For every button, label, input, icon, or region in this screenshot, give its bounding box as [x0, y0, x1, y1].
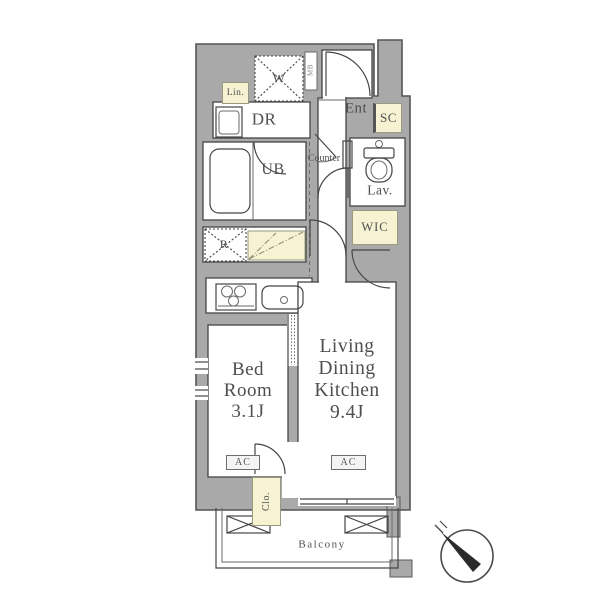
fridge-label: R — [220, 238, 229, 250]
lavatory-label: Lav. — [367, 183, 393, 197]
closet-label: Clo. — [252, 477, 281, 526]
compass-icon — [435, 521, 493, 582]
shoe-closet-label: SC — [373, 103, 402, 133]
washer-label: W — [273, 72, 286, 85]
shoe-closet-text: SC — [380, 110, 397, 126]
ac-unit-bedroom: AC — [226, 455, 260, 470]
bedroom-size: 3.1J — [203, 401, 293, 422]
counter-label: Counter — [308, 154, 340, 164]
dressing-room-label: DR — [252, 111, 277, 128]
floorplan-drawing — [0, 0, 610, 610]
bedroom-label: Bed Room 3.1J — [203, 359, 293, 422]
balcony-label: Balcony — [298, 540, 345, 551]
linen-closet-label: Lin. — [222, 82, 249, 104]
planter-icon — [345, 516, 388, 533]
entrance-label: Ent — [345, 102, 367, 117]
ldk-label: Living Dining Kitchen 9.4J — [297, 336, 397, 424]
closet-text: Clo. — [261, 492, 272, 511]
floorplan-page: Lin. W DR MB Ent SC Counter UB Lav. WIC … — [0, 0, 610, 610]
meter-box-label: MB — [308, 64, 315, 76]
room-kitchen-counter — [206, 278, 312, 313]
ac-unit-ldk: AC — [331, 455, 366, 470]
ac-ldk-text: AC — [341, 457, 357, 468]
balcony-window — [298, 496, 396, 506]
ac-bedroom-text: AC — [235, 457, 251, 468]
ldk-size: 9.4J — [297, 402, 397, 424]
ldk-name-line2: Dining — [297, 358, 397, 380]
wic-text: WIC — [361, 220, 388, 235]
room-corridor — [318, 98, 346, 282]
walk-in-closet-label: WIC — [352, 210, 398, 245]
cabinet-hatch — [248, 231, 305, 260]
ldk-name-line3: Kitchen — [297, 380, 397, 402]
room-bath — [203, 142, 306, 220]
bath-label: UB — [261, 162, 284, 178]
linen-text: Lin. — [227, 88, 245, 98]
ldk-name-line1: Living — [297, 336, 397, 358]
bedroom-name-line2: Room — [203, 380, 293, 401]
bedroom-name-line1: Bed — [203, 359, 293, 380]
